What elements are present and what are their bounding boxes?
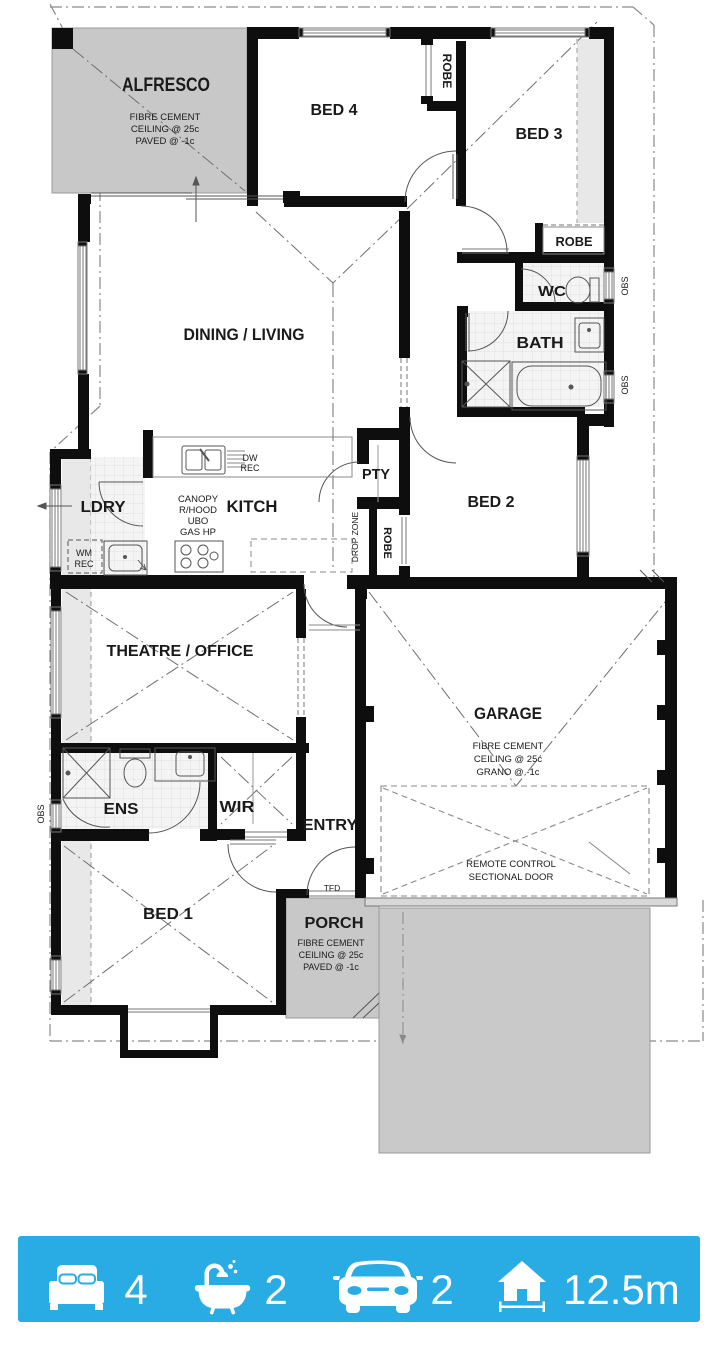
svg-text:ENS: ENS [104, 801, 139, 818]
svg-text:REC: REC [240, 463, 260, 473]
svg-text:ROBE: ROBE [440, 54, 454, 89]
svg-text:WIR: WIR [220, 799, 255, 816]
svg-text:R/HOOD: R/HOOD [179, 505, 217, 516]
svg-text:PAVED @ -1c: PAVED @ -1c [303, 962, 359, 972]
svg-text:2: 2 [264, 1266, 287, 1313]
svg-text:ENTRY: ENTRY [303, 817, 358, 834]
svg-text:PTY: PTY [362, 466, 390, 483]
svg-text:GARAGE: GARAGE [474, 704, 542, 723]
svg-text:TFD: TFD [324, 883, 341, 893]
svg-text:CEILING @ 25c: CEILING @ 25c [299, 950, 364, 960]
svg-text:ROBE: ROBE [556, 234, 593, 249]
svg-text:DROP ZONE: DROP ZONE [350, 511, 360, 562]
svg-text:REMOTE CONTROL: REMOTE CONTROL [466, 859, 556, 870]
svg-text:FIBRE CEMENT: FIBRE CEMENT [473, 741, 544, 752]
svg-text:12.5m: 12.5m [563, 1266, 680, 1313]
svg-text:LDRY: LDRY [81, 499, 126, 516]
svg-text:OBS: OBS [620, 276, 630, 295]
svg-text:BATH: BATH [517, 335, 564, 352]
svg-text:CANOPY: CANOPY [178, 494, 219, 505]
svg-text:BED 4: BED 4 [311, 102, 358, 119]
svg-text:KITCH: KITCH [227, 497, 278, 516]
svg-text:ALFRESCO: ALFRESCO [122, 75, 210, 96]
svg-text:DINING / LIVING: DINING / LIVING [184, 325, 305, 344]
svg-text:ROBE: ROBE [381, 527, 393, 559]
svg-text:OBS: OBS [620, 375, 630, 394]
svg-text:CEILING @ 25c: CEILING @ 25c [474, 754, 542, 765]
svg-text:THEATRE / OFFICE: THEATRE / OFFICE [107, 643, 254, 660]
svg-text:FIBRE CEMENT: FIBRE CEMENT [130, 112, 201, 123]
svg-text:PAVED @ -1c: PAVED @ -1c [136, 136, 195, 147]
svg-text:PORCH: PORCH [305, 915, 364, 932]
svg-text:CEILING @ 25c: CEILING @ 25c [131, 124, 199, 135]
svg-text:4: 4 [124, 1266, 147, 1313]
svg-text:DW: DW [243, 453, 258, 463]
svg-text:2: 2 [430, 1266, 453, 1313]
svg-text:UBO: UBO [188, 516, 209, 527]
svg-text:FIBRE CEMENT: FIBRE CEMENT [297, 938, 365, 948]
svg-text:OBS: OBS [36, 804, 46, 823]
svg-text:GAS HP: GAS HP [180, 527, 216, 538]
svg-text:WM: WM [76, 548, 92, 558]
svg-text:REC: REC [74, 559, 94, 569]
svg-text:BED 2: BED 2 [468, 494, 515, 511]
svg-text:BED 3: BED 3 [516, 126, 563, 143]
svg-text:BED 1: BED 1 [143, 906, 193, 923]
svg-text:SECTIONAL DOOR: SECTIONAL DOOR [469, 872, 554, 883]
svg-text:WC: WC [538, 283, 566, 300]
svg-text:GRANO @ -1c: GRANO @ -1c [477, 767, 540, 778]
